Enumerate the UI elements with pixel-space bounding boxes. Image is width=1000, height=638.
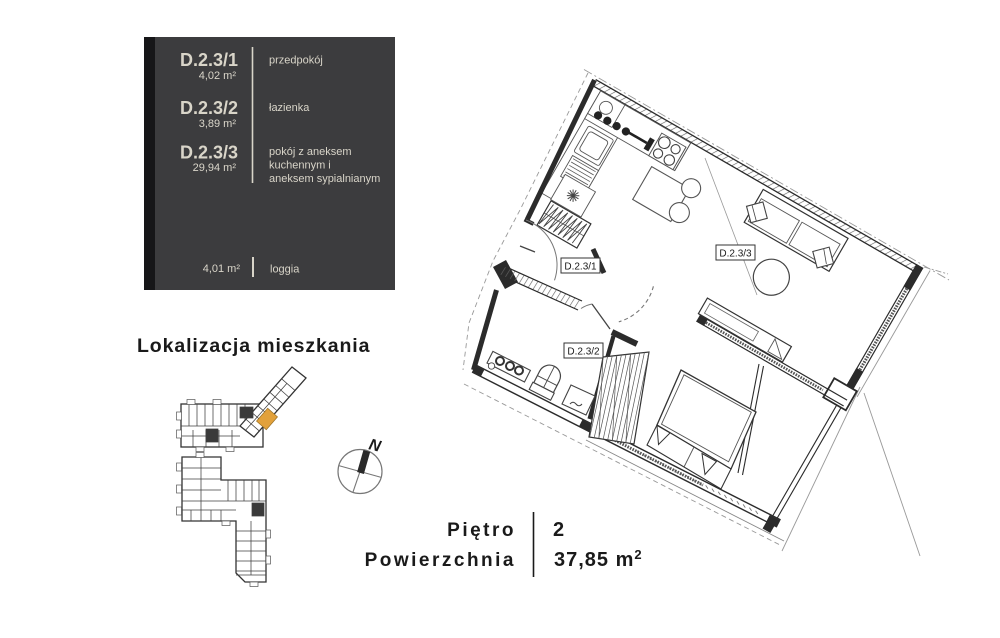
svg-text:D.2.3/1: D.2.3/1 (180, 50, 238, 70)
svg-text:D.2.3/1: D.2.3/1 (564, 262, 597, 273)
svg-text:łazienka: łazienka (269, 102, 310, 114)
svg-text:4,02 m²: 4,02 m² (199, 70, 237, 82)
svg-text:przedpokój: przedpokój (269, 55, 323, 67)
svg-text:D.2.3/2: D.2.3/2 (567, 347, 600, 358)
svg-text:3,89 m²: 3,89 m² (199, 118, 237, 130)
svg-text:Powierzchnia: Powierzchnia (365, 550, 516, 571)
svg-text:D.2.3/2: D.2.3/2 (180, 98, 238, 118)
svg-text:29,94 m²: 29,94 m² (193, 162, 237, 174)
svg-text:Piętro: Piętro (447, 520, 516, 541)
svg-text:kuchennym i: kuchennym i (269, 160, 331, 172)
svg-text:pokój z aneksem: pokój z aneksem (269, 146, 352, 158)
svg-text:4,01 m²: 4,01 m² (203, 263, 241, 275)
svg-text:D.2.3/3: D.2.3/3 (180, 143, 238, 163)
svg-text:D.2.3/3: D.2.3/3 (719, 249, 752, 260)
svg-text:2: 2 (553, 519, 564, 541)
svg-text:37,85 m2: 37,85 m2 (554, 547, 643, 571)
svg-text:aneksem sypialnianym: aneksem sypialnianym (269, 173, 380, 185)
svg-text:Lokalizacja mieszkania: Lokalizacja mieszkania (137, 335, 370, 357)
svg-text:loggia: loggia (270, 264, 300, 276)
